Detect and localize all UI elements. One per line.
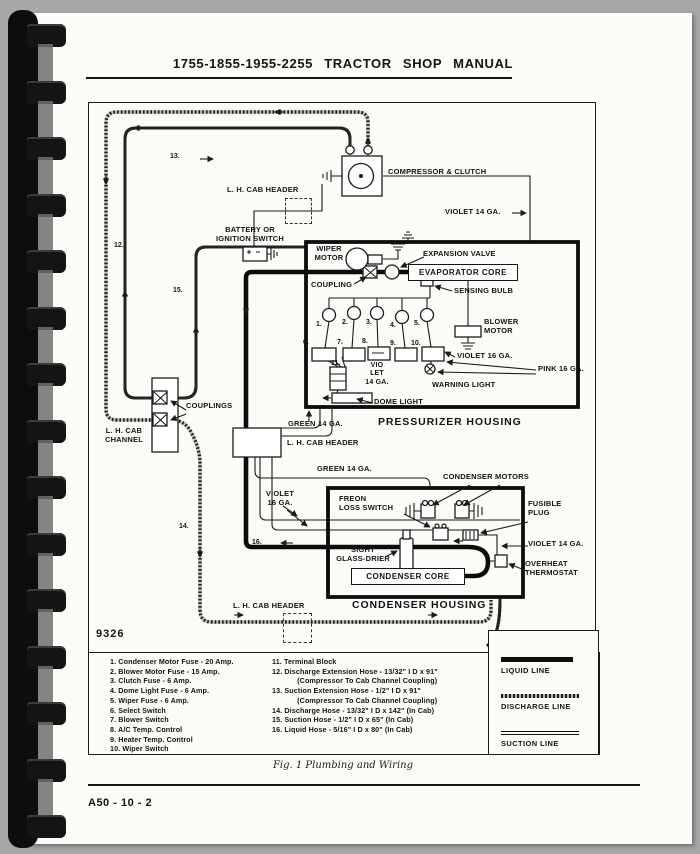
label-fusible-plug: FUSIBLE PLUG xyxy=(528,500,561,518)
leader-arrow xyxy=(438,372,536,374)
caption-rule xyxy=(88,784,640,786)
fuse-symbol xyxy=(421,309,434,322)
label-violet-14-top: VIOLET 14 GA. xyxy=(445,208,501,217)
wire-number-16: 16. xyxy=(252,539,262,546)
wiper-motor-symbol xyxy=(346,248,368,270)
label-violet-14-stacked: VIO LET 14 GA. xyxy=(363,362,391,387)
label-condenser-housing: CONDENSER HOUSING xyxy=(352,599,486,611)
suction-hose-line xyxy=(168,247,306,398)
component-number-11: 11. xyxy=(331,360,340,367)
label-dome-light: DOME LIGHT xyxy=(374,398,423,407)
legend-item: 4. Dome Light Fuse - 6 Amp. xyxy=(110,686,234,696)
legend-item: 11. Terminal Block xyxy=(272,657,438,667)
legend-item: 13. Suction Extension Hose - 1/2" I D x … xyxy=(272,686,438,705)
label-lh-cab-header-top: L. H. CAB HEADER xyxy=(227,186,299,195)
leader-arrow xyxy=(354,277,366,284)
fuse-symbol xyxy=(323,309,336,322)
label-lh-cab-header-mid: L. H. CAB HEADER xyxy=(287,439,359,448)
label-overheat-thermostat: OVERHEAT THERMOSTAT xyxy=(525,560,578,578)
condenser-motor-symbol xyxy=(421,504,435,518)
label-green-14-lower: GREEN 14 GA. xyxy=(317,465,372,474)
label-couplings: COUPLINGS xyxy=(186,402,232,411)
label-condenser-motors: CONDENSER MOTORS xyxy=(443,473,529,482)
suction-line-label: SUCTION LINE xyxy=(501,739,559,748)
component-number-10: 10. xyxy=(411,340,421,347)
label-warning-light: WARNING LIGHT xyxy=(432,381,495,390)
legend-item: 6. Select Switch xyxy=(110,706,234,716)
fuse-symbol xyxy=(396,311,409,324)
switch-symbol xyxy=(422,347,444,361)
label-lh-cab-channel: L. H. CAB CHANNEL xyxy=(102,427,146,445)
legend-item: 10. Wiper Switch xyxy=(110,744,234,754)
legend-right-column: 11. Terminal Block 12. Discharge Extensi… xyxy=(272,657,438,735)
legend-item: 7. Blower Switch xyxy=(110,715,234,725)
leader-arrow xyxy=(287,510,307,526)
evaporator-core-label: EVAPORATOR CORE xyxy=(419,268,507,277)
wire-number-13: 13. xyxy=(170,153,180,160)
condenser-core-label: CONDENSER CORE xyxy=(366,572,449,581)
leader-arrow xyxy=(447,362,536,370)
component-number-8: 8. xyxy=(362,338,368,345)
condenser-motor-symbol xyxy=(455,504,469,518)
label-pressurizer-housing: PRESSURIZER HOUSING xyxy=(378,416,522,428)
fuse-number-2: 2. xyxy=(342,319,348,326)
sight-glass-drier-symbol xyxy=(400,538,413,570)
legend-item: 5. Wiper Fuse - 6 Amp. xyxy=(110,696,234,706)
leader-arrow xyxy=(481,522,528,533)
fuse-number-5: 5. xyxy=(414,320,420,327)
control-symbol xyxy=(395,348,417,361)
label-compressor-clutch: COMPRESSOR & CLUTCH xyxy=(388,168,486,177)
label-sight-glass-drier: SIGHT GLASS-DRIER xyxy=(330,546,396,564)
scanned-manual-page: 1755-1855-1955-2255 TRACTOR SHOP MANUAL xyxy=(0,0,700,854)
overheat-thermostat-symbol xyxy=(495,555,507,567)
figure-caption: Fig. 1 Plumbing and Wiring xyxy=(88,760,598,771)
legend-item: 12. Discharge Extension Hose - 13/32" I … xyxy=(272,667,438,686)
switch-symbol xyxy=(343,348,365,361)
legend-item: 16. Liquid Hose - 5/16" I D x 80" (In Ca… xyxy=(272,725,438,735)
freon-loss-switch-symbol xyxy=(433,528,448,540)
leader-arrow xyxy=(435,286,452,291)
legend-item: 3. Clutch Fuse - 6 Amp. xyxy=(110,676,234,686)
legend-left-column: 1. Condenser Motor Fuse - 20 Amp. 2. Blo… xyxy=(110,657,234,754)
legend-item: 14. Discharge Hose - 13/32" I D x 142" (… xyxy=(272,706,438,716)
liquid-line-label: LIQUID LINE xyxy=(501,666,550,675)
discharge-line-sample xyxy=(501,694,579,698)
fuse-symbol xyxy=(348,307,361,320)
label-blower-motor: BLOWER MOTOR xyxy=(484,318,519,336)
fuse-number-3: 3. xyxy=(366,319,372,326)
label-sensing-bulb: SENSING BULB xyxy=(454,287,513,296)
component-number-7: 7. xyxy=(337,339,343,346)
terminal-block-symbol xyxy=(330,367,346,390)
component-number-6: 6. xyxy=(303,339,309,346)
label-expansion-valve: EXPANSION VALVE xyxy=(423,250,496,259)
component-number-9: 9. xyxy=(390,340,396,347)
legend-item: 1. Condenser Motor Fuse - 20 Amp. xyxy=(110,657,234,667)
page-code: A50 - 10 - 2 xyxy=(88,797,152,809)
compressor-port-icon xyxy=(346,146,354,154)
discharge-extension-line xyxy=(106,112,368,420)
label-freon-loss-switch: FREON LOSS SWITCH xyxy=(339,495,393,513)
line-style-legend: LIQUID LINE DISCHARGE LINE SUCTION LINE xyxy=(488,630,599,755)
fuse-number-4: 4. xyxy=(390,322,396,329)
figure-number: 9326 xyxy=(96,628,124,640)
legend-item: 15. Suction Hose - 1/2" I D x 65" (In Ca… xyxy=(272,715,438,725)
liquid-line-sample xyxy=(501,657,573,662)
discharge-line-label: DISCHARGE LINE xyxy=(501,702,571,711)
label-green-14-upper: GREEN 14 GA. xyxy=(288,420,343,429)
legend-item: 8. A/C Temp. Control xyxy=(110,725,234,735)
label-violet-16: VIOLET 16 GA. xyxy=(457,352,513,361)
label-violet-16-stacked: VIOLET 16 GA. xyxy=(258,490,302,508)
evaporator-core-box: EVAPORATOR CORE xyxy=(408,264,518,281)
label-lh-cab-header-bottom: L. H. CAB HEADER xyxy=(233,602,305,611)
compressor-port-icon xyxy=(364,146,372,154)
wire-number-12: 12. xyxy=(114,242,124,249)
blower-motor-symbol xyxy=(455,326,481,337)
label-violet-14-condenser: VIOLET 14 GA. xyxy=(528,540,584,549)
legend-item: 2. Blower Motor Fuse - 15 Amp. xyxy=(110,667,234,677)
label-battery-ignition: BATTERY OR IGNITION SWITCH xyxy=(205,226,295,244)
label-pink-16: PINK 16 GA. xyxy=(538,365,584,374)
condenser-core-box: CONDENSER CORE xyxy=(351,568,465,585)
label-coupling: COUPLING xyxy=(311,281,352,290)
legend-item: 9. Heater Temp. Control xyxy=(110,735,234,745)
wire-number-14: 14. xyxy=(179,523,189,530)
cab-header-dashed-box xyxy=(283,613,312,643)
suction-line-sample xyxy=(501,731,579,735)
ignition-switch-symbol xyxy=(243,247,267,261)
fuse-number-1: 1. xyxy=(316,321,322,328)
wire-number-15: 15. xyxy=(173,287,183,294)
cab-header-box xyxy=(233,428,281,457)
fuse-symbol xyxy=(371,307,384,320)
leader-arrow xyxy=(445,352,455,357)
expansion-valve-symbol xyxy=(385,265,399,279)
cab-header-dashed-box xyxy=(285,198,312,224)
label-wiper-motor: WIPER MOTOR xyxy=(312,245,346,263)
